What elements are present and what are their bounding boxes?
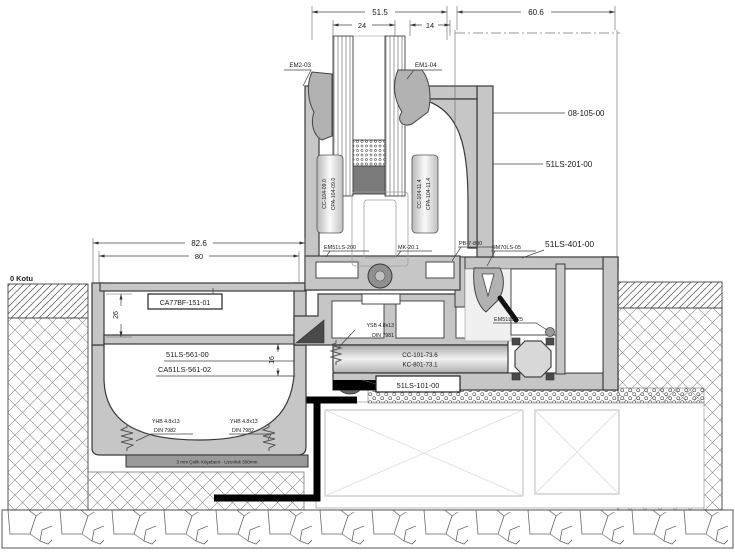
subfloor-block-large bbox=[325, 410, 523, 496]
svg-text:YSB 4.8x13: YSB 4.8x13 bbox=[367, 323, 395, 329]
frame-top-cap bbox=[455, 257, 618, 269]
svg-text:80: 80 bbox=[195, 252, 203, 261]
svg-text:MK-20.1: MK-20.1 bbox=[398, 245, 419, 251]
svg-text:24: 24 bbox=[358, 21, 366, 30]
svg-text:YHB 4.8x13: YHB 4.8x13 bbox=[230, 419, 258, 425]
thermal-break-bar bbox=[333, 345, 508, 373]
steel-angle-label: 3 mm Çelik Köşebent - Uzunluk 300mm bbox=[177, 460, 258, 465]
svg-text:14: 14 bbox=[426, 21, 434, 30]
frame-chamber-right bbox=[565, 269, 603, 373]
ground-bottom-stone bbox=[2, 510, 733, 548]
subfloor-blocks bbox=[316, 388, 704, 508]
svg-text:51LS-561-00: 51LS-561-00 bbox=[166, 350, 209, 359]
dim-sash-width: 51.5 bbox=[312, 5, 447, 17]
svg-text:60.6: 60.6 bbox=[528, 8, 544, 17]
svg-text:16: 16 bbox=[269, 356, 276, 364]
label-08-105-00: 08-105-00 bbox=[493, 109, 605, 118]
dim-channel-depth: 26 bbox=[106, 294, 132, 337]
svg-text:82.6: 82.6 bbox=[191, 239, 207, 248]
svg-text:CA77BF-151-01: CA77BF-151-01 bbox=[160, 300, 211, 307]
channel-inner-floor bbox=[104, 335, 294, 344]
ground-under-channel bbox=[88, 472, 304, 510]
svg-text:DIN 7982: DIN 7982 bbox=[232, 428, 254, 434]
label-em51ls-200: EM51LS-200 bbox=[323, 245, 369, 257]
chamber-right-code-2: CPA-104-11.4 bbox=[426, 178, 432, 210]
frame-divider bbox=[556, 264, 565, 374]
svg-text:51.5: 51.5 bbox=[372, 8, 388, 17]
svg-text:08-105-00: 08-105-00 bbox=[568, 109, 605, 118]
thermal-bar-code-2: KC-801-73.1 bbox=[402, 362, 438, 369]
svg-text:PB-7-800: PB-7-800 bbox=[459, 241, 482, 247]
dim-step-height: 16 bbox=[269, 344, 296, 376]
gasket-em1 bbox=[395, 70, 430, 125]
svg-text:51LS-401-00: 51LS-401-00 bbox=[545, 239, 594, 249]
subfloor-block-small bbox=[535, 410, 619, 494]
label-51ls-401-00: 51LS-401-00 bbox=[522, 239, 594, 258]
svg-text:EM1-04: EM1-04 bbox=[415, 62, 437, 69]
svg-text:DIN 7982: DIN 7982 bbox=[154, 428, 176, 434]
svg-text:26: 26 bbox=[113, 311, 120, 319]
dim-interlock-width: 14 bbox=[410, 19, 450, 30]
label-51ls-101: 51LS-101-00 bbox=[362, 376, 460, 392]
section-drawing-svg: 3 mm Çelik Köşebent - Uzunluk 300mm CC-1… bbox=[0, 0, 735, 554]
svg-text:CA51LS-561-02: CA51LS-561-02 bbox=[158, 365, 211, 374]
level-marker-label: 0 Kotu bbox=[10, 274, 33, 283]
svg-text:EM70LS-05: EM70LS-05 bbox=[492, 245, 521, 251]
svg-text:EM51LS-200: EM51LS-200 bbox=[324, 245, 356, 251]
glazing-spacer bbox=[353, 140, 385, 166]
svg-text:EM2-03: EM2-03 bbox=[289, 62, 311, 69]
svg-text:DIN 7981: DIN 7981 bbox=[372, 333, 394, 339]
label-51ls-201-00: 51LS-201-00 bbox=[493, 160, 593, 169]
track-groove bbox=[362, 294, 400, 304]
glazing-seal bbox=[353, 166, 385, 194]
frame-chamber-left bbox=[511, 269, 556, 335]
chamber-left-code-2: CPA-104-09.0 bbox=[331, 178, 337, 211]
channel-top-plate bbox=[100, 283, 306, 291]
svg-text:51LS-101-00: 51LS-101-00 bbox=[397, 381, 440, 390]
drainage-channel: 3 mm Çelik Köşebent - Uzunluk 300mm bbox=[92, 283, 308, 467]
isolator-octagon bbox=[512, 338, 554, 380]
technical-drawing-threshold-section: 3 mm Çelik Köşebent - Uzunluk 300mm CC-1… bbox=[0, 0, 735, 554]
gasket-em51ls25 bbox=[546, 328, 555, 337]
svg-text:EM51LS-25: EM51LS-25 bbox=[494, 317, 523, 323]
svg-text:51LS-201-00: 51LS-201-00 bbox=[546, 160, 593, 169]
frame-right-wall bbox=[603, 257, 618, 390]
svg-text:YHB 4.8x13: YHB 4.8x13 bbox=[152, 419, 180, 425]
ground-left bbox=[8, 284, 88, 510]
chamber-right-code-1: CC-104-11.4 bbox=[417, 179, 423, 208]
chamber-left-code-1: CC-104-09.0 bbox=[322, 179, 328, 209]
channel-left-wall bbox=[92, 283, 104, 345]
label-em2-03: EM2-03 bbox=[284, 62, 312, 86]
sash-thermal-chamber-right bbox=[412, 155, 438, 233]
sash-right-wall bbox=[477, 86, 493, 257]
sash-thermal-chamber-left bbox=[317, 155, 343, 233]
dim-frame-width: 60.6 bbox=[457, 5, 615, 17]
dim-glazing-width: 24 bbox=[333, 19, 395, 30]
dim-channel-inner: 80 bbox=[99, 250, 299, 283]
label-mk-20-1: MK-20.1 bbox=[396, 245, 432, 257]
thermal-bar-code-1: CC-101-73.6 bbox=[402, 352, 438, 359]
